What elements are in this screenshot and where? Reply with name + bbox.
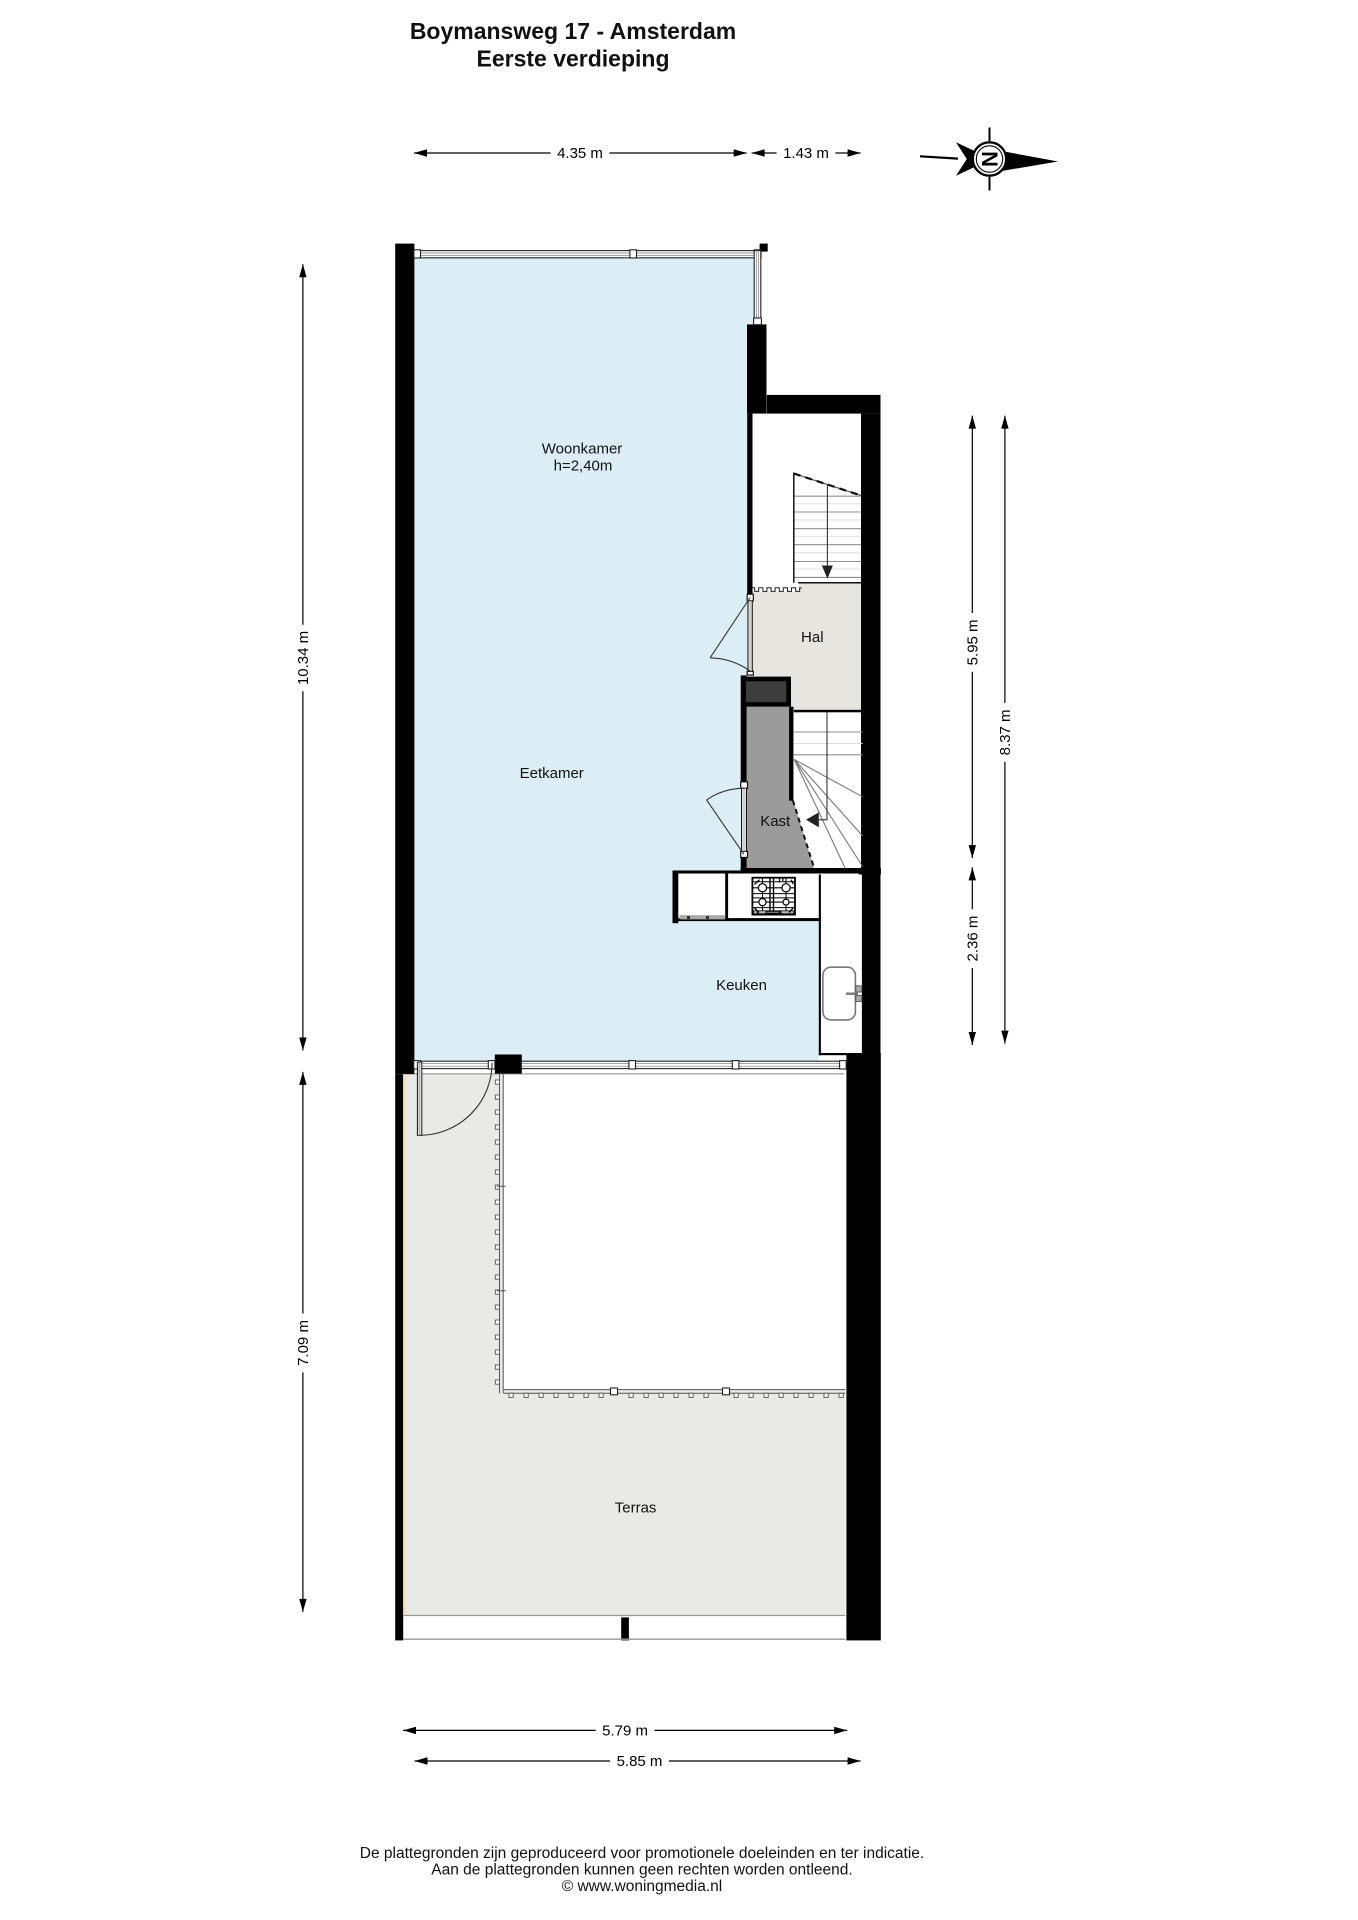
svg-text:10.34 m: 10.34 m [295,631,312,685]
svg-text:Hal: Hal [801,629,824,646]
svg-text:Terras: Terras [615,1500,657,1517]
svg-text:h=2,40m: h=2,40m [554,458,613,475]
svg-text:Boymansweg 17 - Amsterdam: Boymansweg 17 - Amsterdam [410,18,736,44]
svg-text:Kast: Kast [760,813,791,830]
svg-text:5.95 m: 5.95 m [965,619,982,665]
svg-text:© www.woningmedia.nl: © www.woningmedia.nl [562,1878,722,1895]
svg-text:7.09 m: 7.09 m [295,1320,312,1366]
svg-text:5.79 m: 5.79 m [602,1723,648,1740]
svg-text:2.36 m: 2.36 m [965,916,982,962]
svg-text:Aan de plattegronden kunnen ge: Aan de plattegronden kunnen geen rechten… [431,1862,852,1879]
svg-text:1.43 m: 1.43 m [783,145,829,162]
svg-text:Woonkamer: Woonkamer [542,441,623,458]
svg-text:Eerste verdieping: Eerste verdieping [476,46,669,72]
svg-text:N: N [977,151,1002,167]
svg-text:Keuken: Keuken [716,977,767,994]
svg-text:Eetkamer: Eetkamer [520,765,584,782]
svg-text:De plattegronden zijn geproduc: De plattegronden zijn geproduceerd voor … [360,1845,924,1862]
svg-text:4.35 m: 4.35 m [557,145,603,162]
svg-text:8.37 m: 8.37 m [997,709,1014,755]
svg-text:5.85 m: 5.85 m [617,1753,663,1770]
